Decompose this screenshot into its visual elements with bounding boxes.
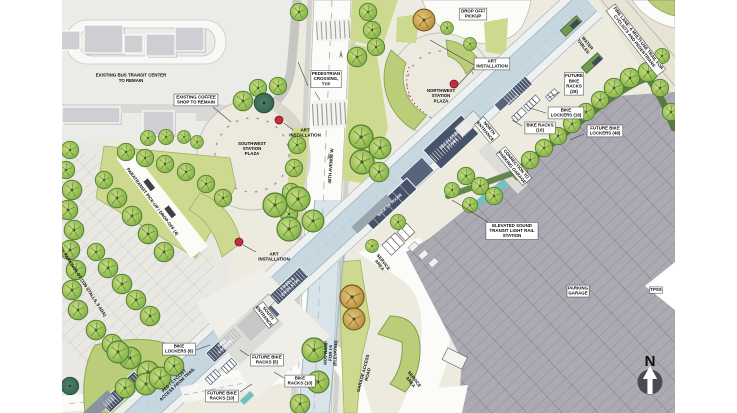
svg-text:RACKS (5): RACKS (5) bbox=[256, 360, 279, 365]
svg-text:INSTALLATION: INSTALLATION bbox=[289, 133, 321, 138]
svg-text:INSTALLATION: INSTALLATION bbox=[258, 257, 290, 262]
svg-text:LOCKERS (16): LOCKERS (16) bbox=[551, 113, 582, 118]
svg-text:SHOP TO REMAIN: SHOP TO REMAIN bbox=[177, 100, 215, 105]
svg-text:RACKS (10): RACKS (10) bbox=[210, 396, 235, 401]
svg-text:TYP: TYP bbox=[322, 81, 331, 86]
svg-text:(10): (10) bbox=[536, 128, 544, 133]
svg-text:TPSS: TPSS bbox=[650, 287, 662, 292]
svg-text:STATION: STATION bbox=[503, 233, 522, 238]
svg-text:PLAZA: PLAZA bbox=[434, 98, 449, 103]
svg-text:LOCKERS (48): LOCKERS (48) bbox=[590, 131, 621, 136]
svg-text:PICKUP: PICKUP bbox=[465, 14, 482, 19]
svg-text:GARAGE: GARAGE bbox=[568, 291, 587, 296]
svg-text:RACKS (10): RACKS (10) bbox=[288, 381, 313, 386]
svg-text:INSTALLATION: INSTALLATION bbox=[476, 64, 508, 69]
svg-text:EXISTING BUS TRANSIT CENTER: EXISTING BUS TRANSIT CENTER bbox=[96, 73, 167, 78]
svg-text:(ELEVATED): (ELEVATED) bbox=[332, 340, 338, 366]
svg-text:LOCKERS (8): LOCKERS (8) bbox=[165, 349, 194, 354]
svg-text:FUTURE: FUTURE bbox=[565, 73, 583, 78]
svg-text:PLAZA: PLAZA bbox=[245, 151, 260, 156]
svg-text:(28): (28) bbox=[570, 89, 578, 94]
svg-text:TO REMAIN: TO REMAIN bbox=[119, 78, 144, 83]
